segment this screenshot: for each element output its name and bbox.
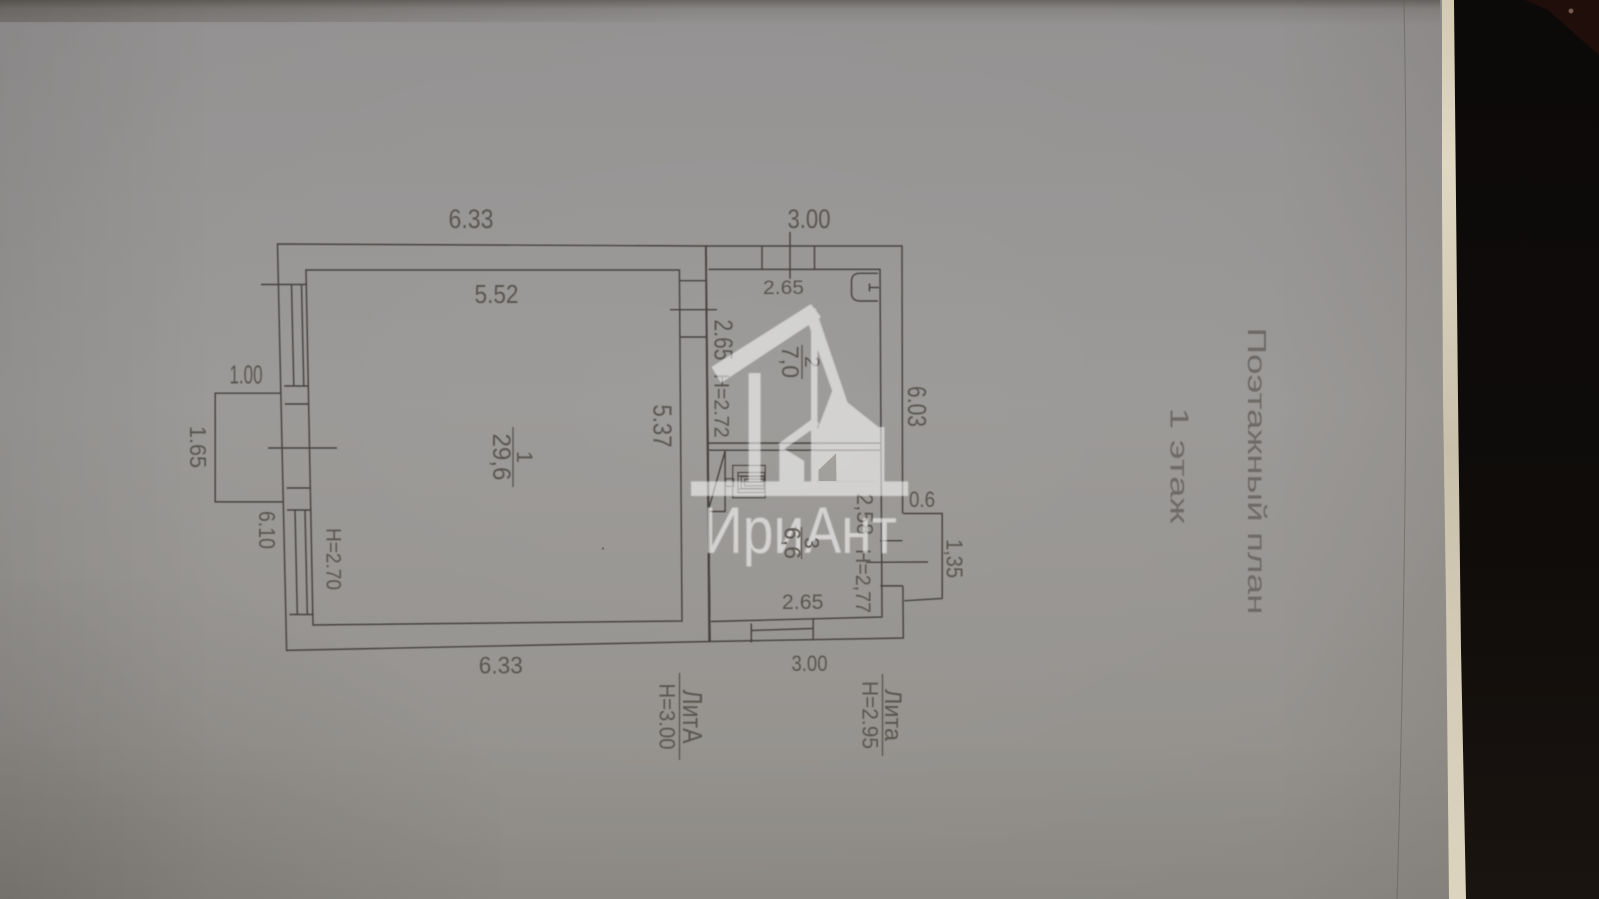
svg-text:Н=2.95: Н=2.95 <box>858 681 883 749</box>
svg-text:6,6: 6,6 <box>780 527 806 559</box>
svg-text:5.52: 5.52 <box>475 279 519 309</box>
svg-text:3.00: 3.00 <box>788 204 831 234</box>
svg-text:29,6: 29,6 <box>487 434 515 481</box>
svg-text:2.65: 2.65 <box>782 591 824 614</box>
svg-text:6.33: 6.33 <box>479 653 523 680</box>
svg-text:6.03: 6.03 <box>902 386 932 427</box>
svg-text:7,0: 7,0 <box>776 346 803 378</box>
svg-text:1.65: 1.65 <box>185 426 211 468</box>
svg-text:6.10: 6.10 <box>254 511 280 549</box>
svg-text:Н=2.70: Н=2.70 <box>322 528 345 590</box>
svg-text:Поэтажный план: Поэтажный план <box>1242 328 1272 615</box>
svg-text:5.37: 5.37 <box>648 405 678 448</box>
svg-text:Н=2.72: Н=2.72 <box>710 374 733 438</box>
svg-text:ЛитА: ЛитА <box>677 690 708 744</box>
svg-text:3.00: 3.00 <box>792 651 828 676</box>
svg-text:Н=3.00: Н=3.00 <box>655 684 680 750</box>
svg-text:2.65: 2.65 <box>763 278 804 299</box>
svg-text:1.00: 1.00 <box>230 360 263 390</box>
svg-text:1,35: 1,35 <box>942 539 968 578</box>
svg-text:6.33: 6.33 <box>449 204 494 234</box>
svg-text:1 этаж: 1 этаж <box>1165 408 1195 525</box>
svg-text:0.6: 0.6 <box>909 487 935 512</box>
